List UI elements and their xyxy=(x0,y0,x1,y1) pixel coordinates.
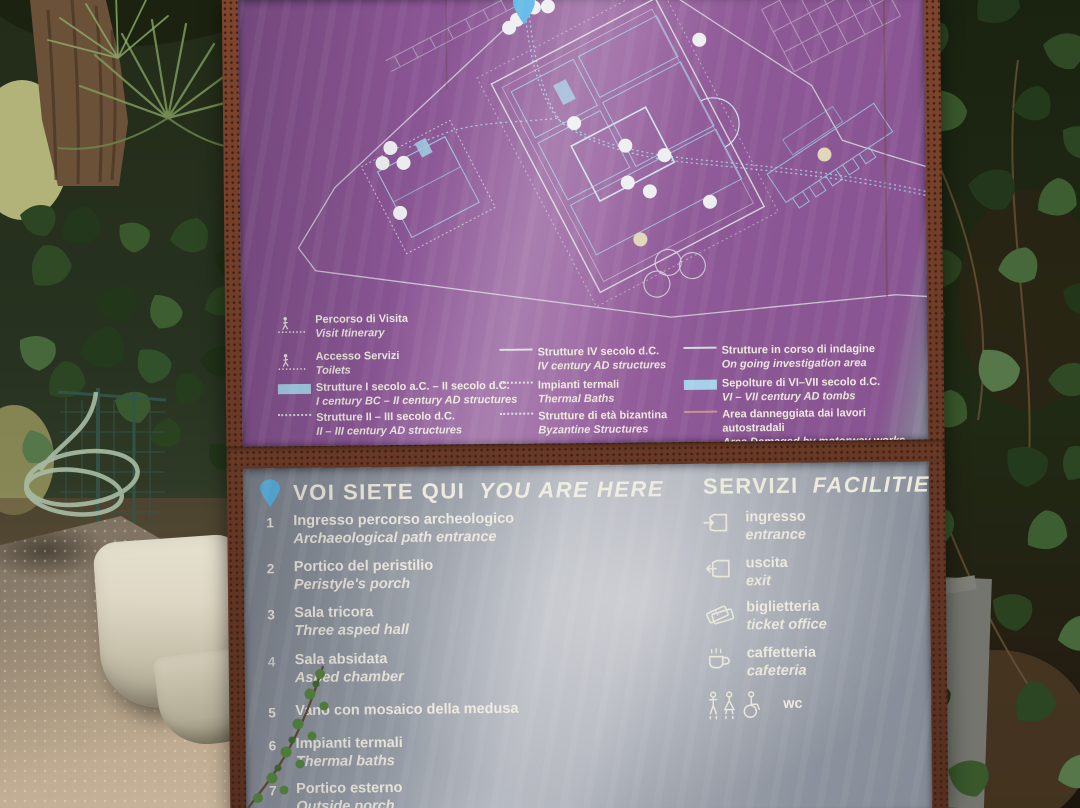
service-name-en: exit xyxy=(746,572,788,591)
legend-item: Percorso di VisitaVisit Itinerary xyxy=(277,311,507,342)
service-item: ingressoentrance xyxy=(703,508,806,545)
legend-label-en: II – III century AD structures xyxy=(316,423,462,439)
legend-label-en: Thermal Baths xyxy=(538,392,619,407)
legend-item: Strutture II – III secolo d.C.II – III c… xyxy=(278,409,518,440)
location-item: 2Portico del peristilioPeristyle's porch xyxy=(267,558,434,595)
service-name-en: ticket office xyxy=(746,616,827,635)
location-name-en: Three asped hall xyxy=(294,622,409,641)
legend-label-it: Impianti termali xyxy=(538,378,619,393)
map-panel: Percorso di VisitaVisit Itinerary Access… xyxy=(238,0,929,447)
location-number: 5 xyxy=(268,703,295,721)
location-number: 2 xyxy=(267,559,294,595)
legend-label-it: Area danneggiata dai lavori autostradali xyxy=(722,405,924,435)
service-item: uscitaexit xyxy=(704,554,788,591)
location-number: 4 xyxy=(268,652,295,688)
location-number: 1 xyxy=(266,513,293,549)
service-name-en: cafeteria xyxy=(747,662,816,681)
location-name-it: Impianti termali xyxy=(296,735,403,754)
legend-item: Accesso ServiziToilets xyxy=(278,348,508,379)
blue-structure-swatch xyxy=(278,381,316,410)
services-header-en: FACILITIES xyxy=(813,471,933,497)
info-panel: VOI SIETE QUIYOU ARE HERE SERVIZIFACILIT… xyxy=(243,461,933,808)
legend-label-en: VI – VII century AD tombs xyxy=(722,389,880,405)
foliage-left xyxy=(0,0,250,808)
legend-label-it: Accesso Servizi xyxy=(316,349,400,364)
location-name-it: Ingresso percorso archeologico xyxy=(293,511,514,531)
service-name-it: ingresso xyxy=(745,508,806,527)
services-header: SERVIZIFACILITIES xyxy=(703,471,933,500)
walk-icon xyxy=(277,313,315,342)
ticket-icon xyxy=(704,598,734,635)
location-name-it: Portico del peristilio xyxy=(294,558,434,577)
service-name-it: wc xyxy=(783,695,803,713)
you-are-here-it: VOI SIETE QUI xyxy=(293,478,466,505)
legend-label-it: Percorso di Visita xyxy=(315,312,408,327)
location-name-en: Archaeological path entrance xyxy=(293,528,514,548)
dotted-line-swatch xyxy=(500,379,538,408)
legend-label-en: IV century AD structures xyxy=(538,358,667,373)
outdoor-photo-scene: Percorso di VisitaVisit Itinerary Access… xyxy=(0,0,1080,808)
exit-icon xyxy=(704,554,734,591)
dotted-line-swatch xyxy=(500,410,538,439)
solid-line-swatch xyxy=(683,344,721,373)
location-item: 5Vano con mosaico della medusa xyxy=(268,701,518,721)
location-item: 4Sala absidataAsped chamber xyxy=(268,651,404,688)
walk-icon xyxy=(278,350,316,379)
location-name-en: Thermal baths xyxy=(296,753,403,772)
coffee-cup-icon xyxy=(705,644,735,681)
location-item: 7Portico esternoOutside porch xyxy=(269,780,403,808)
legend-item: Strutture in corso di indagineOn going i… xyxy=(683,341,923,372)
legend-label-en: Toilets xyxy=(316,363,400,378)
you-are-here-header: VOI SIETE QUIYOU ARE HERE xyxy=(259,474,664,508)
location-name-it: Sala tricora xyxy=(294,604,409,623)
dotted-line-swatch xyxy=(278,411,316,440)
legend-item: Strutture I secolo a.C. – II secolo d.C.… xyxy=(278,379,518,410)
location-name-it: Portico esterno xyxy=(296,780,403,799)
location-pin-icon xyxy=(259,478,281,508)
entrance-icon xyxy=(703,508,733,545)
legend-label-it: Strutture II – III secolo d.C. xyxy=(316,409,462,425)
location-number: 3 xyxy=(267,605,294,641)
location-name-en: Peristyle's porch xyxy=(294,575,434,594)
service-name-en: entrance xyxy=(745,526,806,545)
service-name-it: uscita xyxy=(746,554,788,573)
blue-structure-swatch xyxy=(684,377,722,406)
service-name-it: biglietteria xyxy=(746,597,827,616)
service-item: caffetteriacafeteria xyxy=(705,644,817,681)
legend-item: Sepolture di VI–VII secolo d.C.VI – VII … xyxy=(684,374,924,405)
legend-item: Strutture di età bizantinaByzantine Stru… xyxy=(500,408,685,438)
information-sign: Percorso di VisitaVisit Itinerary Access… xyxy=(222,0,949,808)
location-name-it: Vano con mosaico della medusa xyxy=(295,701,518,721)
legend-item: Impianti termaliThermal Baths xyxy=(500,377,685,407)
location-item: 6Impianti termaliThermal baths xyxy=(269,735,404,772)
service-item: biglietteriaticket office xyxy=(704,597,827,635)
location-number: 6 xyxy=(269,736,296,772)
wc-icon xyxy=(705,690,771,721)
legend-label-en: I century BC – II century AD structures xyxy=(316,393,517,409)
service-name-it: caffetteria xyxy=(747,644,816,663)
red-line-swatch xyxy=(684,408,722,447)
legend-label-it: Strutture IV secolo d.C. xyxy=(537,344,666,359)
legend-label-en: Visit Itinerary xyxy=(315,326,408,341)
location-name-en: Outside porch xyxy=(296,798,403,808)
services-header-it: SERVIZI xyxy=(703,473,799,499)
legend-label-en: On going investigation area xyxy=(722,356,876,372)
location-item: 1Ingresso percorso archeologicoArchaeolo… xyxy=(266,511,514,549)
location-name-en: Asped chamber xyxy=(295,669,404,688)
location-item: 3Sala tricoraThree asped hall xyxy=(267,604,409,641)
solid-line-swatch xyxy=(499,346,537,375)
legend-label-en: Byzantine Structures xyxy=(538,422,667,437)
location-name-it: Sala absidata xyxy=(295,651,404,670)
location-number: 7 xyxy=(269,781,296,808)
you-are-here-en: YOU ARE HERE xyxy=(479,476,664,503)
service-item: wc xyxy=(705,690,803,721)
legend-label-it: Strutture di età bizantina xyxy=(538,408,667,423)
legend-item: Strutture IV secolo d.C.IV century AD st… xyxy=(499,344,684,374)
